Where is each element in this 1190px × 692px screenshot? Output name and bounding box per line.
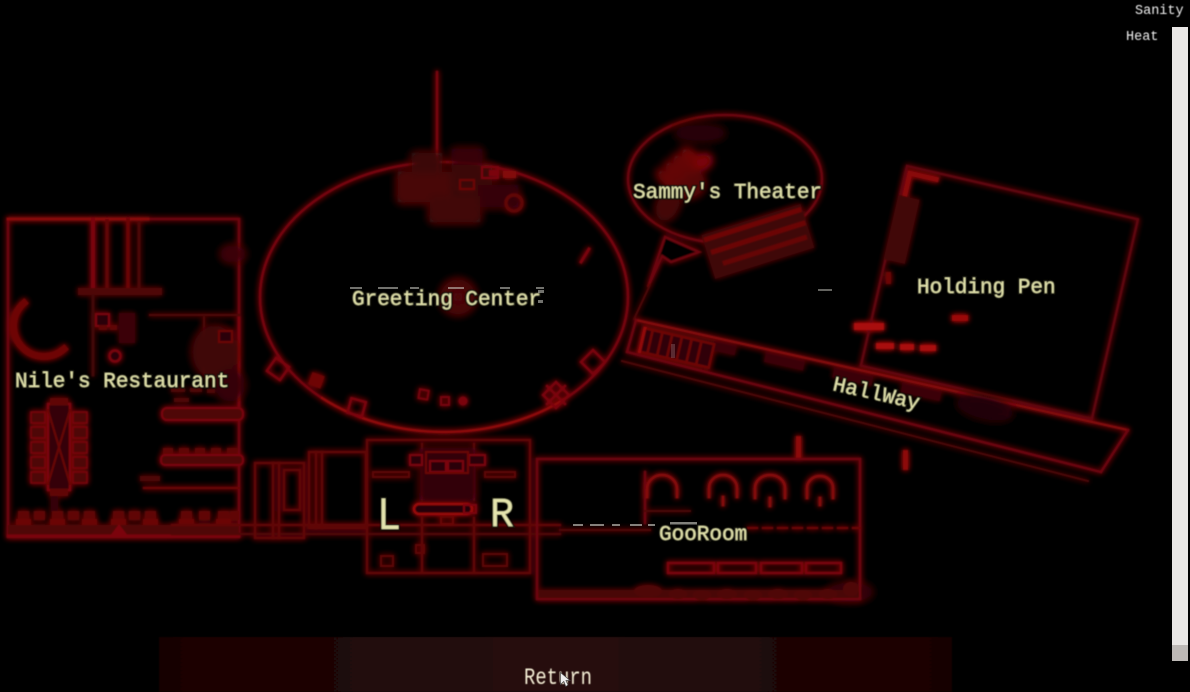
svg-text:Sanity: Sanity bbox=[1135, 4, 1184, 19]
svg-text:L: L bbox=[377, 491, 401, 543]
svg-text:GooRoom: GooRoom bbox=[659, 524, 747, 547]
svg-text:Return: Return bbox=[524, 665, 592, 691]
svg-text:Holding Pen: Holding Pen bbox=[917, 277, 1056, 300]
svg-text:Greeting Center: Greeting Center bbox=[352, 289, 541, 312]
svg-text:Sammy's Theater: Sammy's Theater bbox=[633, 182, 822, 205]
svg-text:Nile's Restaurant: Nile's Restaurant bbox=[15, 371, 229, 394]
svg-text:Heat: Heat bbox=[1126, 30, 1158, 45]
svg-text:R: R bbox=[490, 491, 514, 539]
